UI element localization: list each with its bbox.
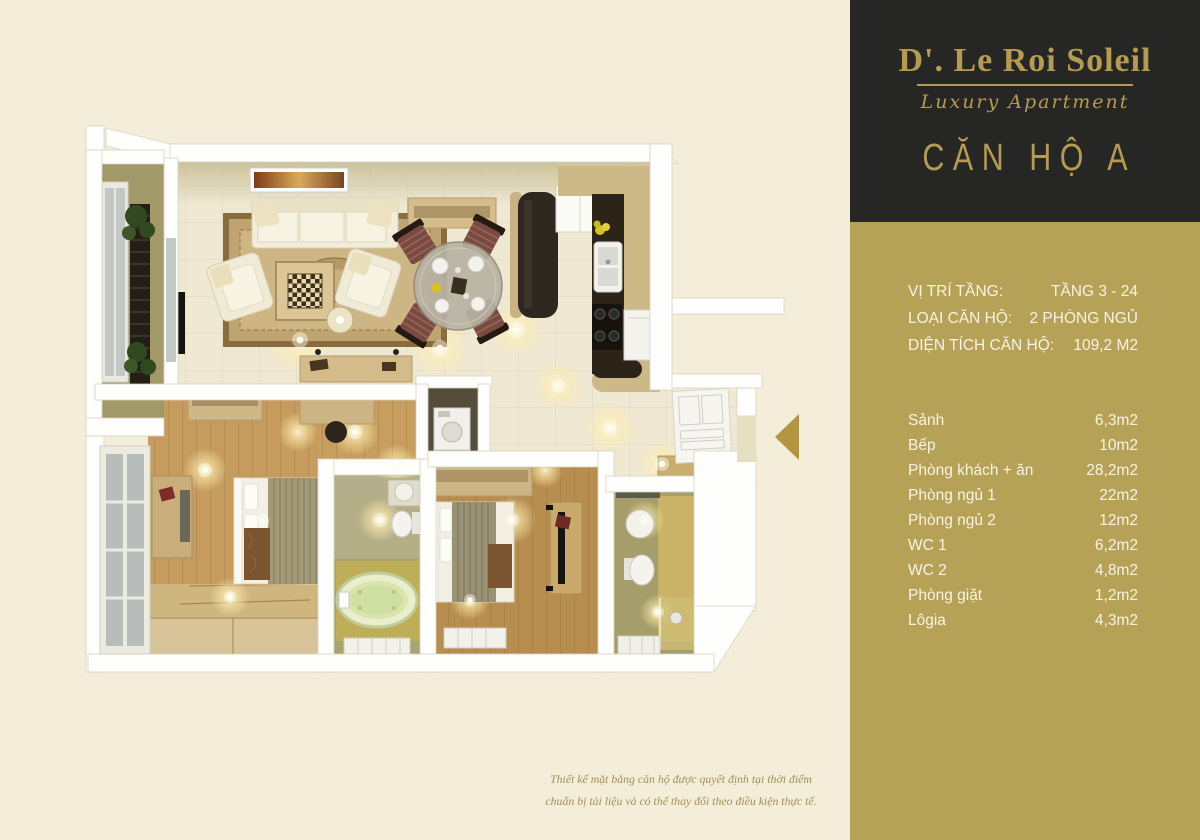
disclaimer-line-1: Thiết kế mặt bằng căn hộ được quyết định… xyxy=(520,768,842,790)
laundry xyxy=(434,408,470,450)
info-value: 109,2 M2 xyxy=(1073,332,1138,359)
living-window-glass xyxy=(166,238,176,362)
bathtub xyxy=(337,573,417,627)
desk-chair xyxy=(325,421,347,443)
kitchen-sink xyxy=(594,242,622,292)
dresser xyxy=(152,476,192,558)
room-label: WC 2 xyxy=(908,558,947,583)
entrance-arrow-icon xyxy=(775,414,799,460)
room-value: 28,2m2 xyxy=(1086,458,1138,483)
room-row: Phòng giặt 1,2m2 xyxy=(908,583,1138,608)
brand-underline xyxy=(917,84,1133,86)
wc2-toilet xyxy=(630,555,654,585)
floor-plan xyxy=(0,0,850,840)
wc2-sink xyxy=(626,510,654,538)
bedroom2-window xyxy=(444,628,506,648)
side-panel: D'. Le Roi Soleil Luxury Apartment CĂN H… xyxy=(850,0,1200,840)
disclaimer-text: Thiết kế mặt bằng căn hộ được quyết định… xyxy=(520,768,842,813)
unit-title: CĂN HỘ A xyxy=(859,136,1192,180)
info-value: 2 PHÒNG NGỦ xyxy=(1029,305,1138,332)
room-value: 4,3m2 xyxy=(1095,608,1138,633)
info-row: DIỆN TÍCH CĂN HỘ: 109,2 M2 xyxy=(908,332,1138,359)
coffee-table xyxy=(276,262,334,320)
room-value: 1,2m2 xyxy=(1095,583,1138,608)
dining-table xyxy=(414,242,502,330)
room-row: WC 2 4,8m2 xyxy=(908,558,1138,583)
info-row: LOẠI CĂN HỘ: 2 PHÒNG NGỦ xyxy=(908,305,1138,332)
room-row: Phòng ngủ 1 22m2 xyxy=(908,483,1138,508)
room-label: Bếp xyxy=(908,433,936,458)
room-label: Lôgia xyxy=(908,608,946,633)
room-label: Phòng khách + ăn xyxy=(908,458,1033,483)
sofa xyxy=(252,198,398,248)
room-value: 6,3m2 xyxy=(1095,408,1138,433)
room-label: Phòng ngủ 2 xyxy=(908,508,996,533)
room-row: Bếp 10m2 xyxy=(908,433,1138,458)
info-label: VỊ TRÍ TẦNG: xyxy=(908,278,1003,305)
brand-tagline: Luxury Apartment xyxy=(850,91,1200,113)
room-value: 22m2 xyxy=(1099,483,1138,508)
room-value: 12m2 xyxy=(1099,508,1138,533)
room-value: 10m2 xyxy=(1099,433,1138,458)
wc1-toilet xyxy=(392,511,412,537)
bedroom1-glazing xyxy=(100,446,150,654)
tv-console xyxy=(550,502,582,594)
info-row: VỊ TRÍ TẦNG: TẦNG 3 - 24 xyxy=(908,278,1138,305)
stove xyxy=(592,304,622,350)
info-label: LOẠI CĂN HỘ: xyxy=(908,305,1012,332)
room-row: Phòng khách + ăn 28,2m2 xyxy=(908,458,1138,483)
brand-logo: D'. Le Roi Soleil xyxy=(850,42,1200,80)
room-value: 6,2m2 xyxy=(1095,533,1138,558)
bed-2 xyxy=(428,502,514,602)
room-label: Phòng giặt xyxy=(908,583,982,608)
info-value: TẦNG 3 - 24 xyxy=(1051,278,1138,305)
room-row: Sảnh 6,3m2 xyxy=(908,408,1138,433)
brand-header: D'. Le Roi Soleil Luxury Apartment CĂN H… xyxy=(850,0,1200,222)
wc1-sink xyxy=(395,483,413,501)
info-label: DIỆN TÍCH CĂN HỘ: xyxy=(908,332,1054,359)
entrance-opening xyxy=(737,416,756,462)
room-label: Sảnh xyxy=(908,408,944,433)
room-label: WC 1 xyxy=(908,533,947,558)
apartment-details-panel: VỊ TRÍ TẦNG: TẦNG 3 - 24 LOẠI CĂN HỘ: 2 … xyxy=(850,222,1200,840)
room-row: WC 1 6,2m2 xyxy=(908,533,1138,558)
apartment-info: VỊ TRÍ TẦNG: TẦNG 3 - 24 LOẠI CĂN HỘ: 2 … xyxy=(908,278,1138,359)
tv-panel xyxy=(178,292,185,354)
room-label: Phòng ngủ 1 xyxy=(908,483,996,508)
room-value: 4,8m2 xyxy=(1095,558,1138,583)
room-row: Lôgia 4,3m2 xyxy=(908,608,1138,633)
bed-1 xyxy=(234,478,322,584)
floor-plan-render xyxy=(0,0,850,840)
brochure-page: Thiết kế mặt bằng căn hộ được quyết định… xyxy=(0,0,1200,840)
room-row: Phòng ngủ 2 12m2 xyxy=(908,508,1138,533)
disclaimer-line-2: chuẩn bị tài liệu và có thể thay đổi the… xyxy=(520,790,842,812)
room-areas-list: Sảnh 6,3m2 Bếp 10m2 Phòng khách + ăn 28,… xyxy=(908,408,1138,633)
